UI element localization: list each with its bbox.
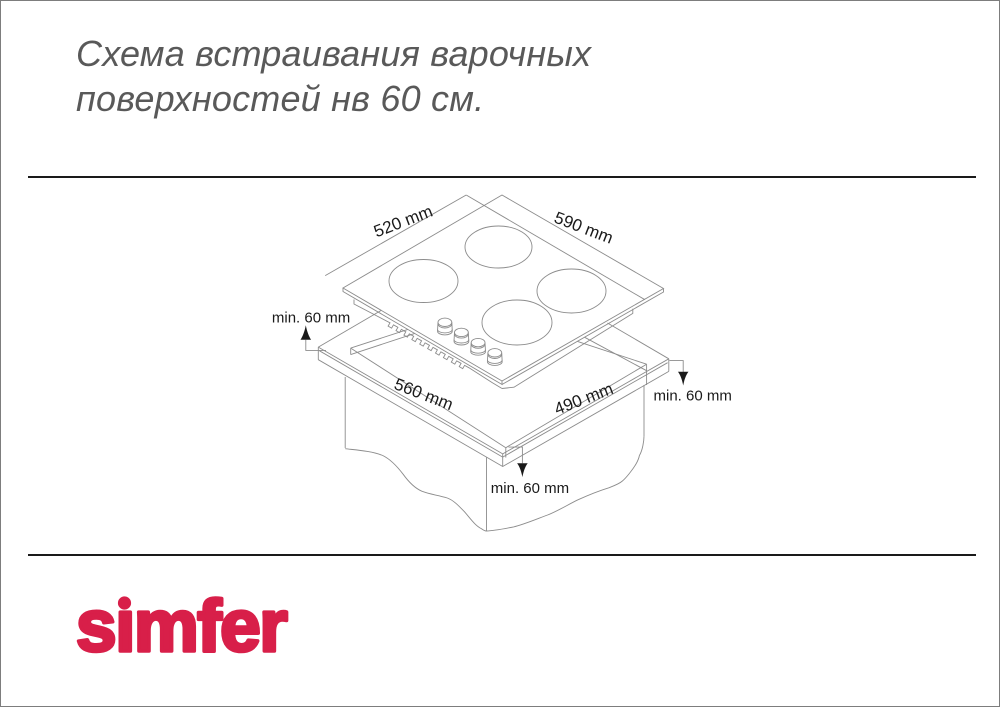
svg-text:min. 60 mm: min. 60 mm <box>491 480 569 497</box>
svg-text:min. 60 mm: min. 60 mm <box>272 310 350 327</box>
svg-text:520 mm: 520 mm <box>371 201 435 241</box>
svg-text:min. 60 mm: min. 60 mm <box>654 388 732 405</box>
svg-text:490 mm: 490 mm <box>552 379 616 419</box>
